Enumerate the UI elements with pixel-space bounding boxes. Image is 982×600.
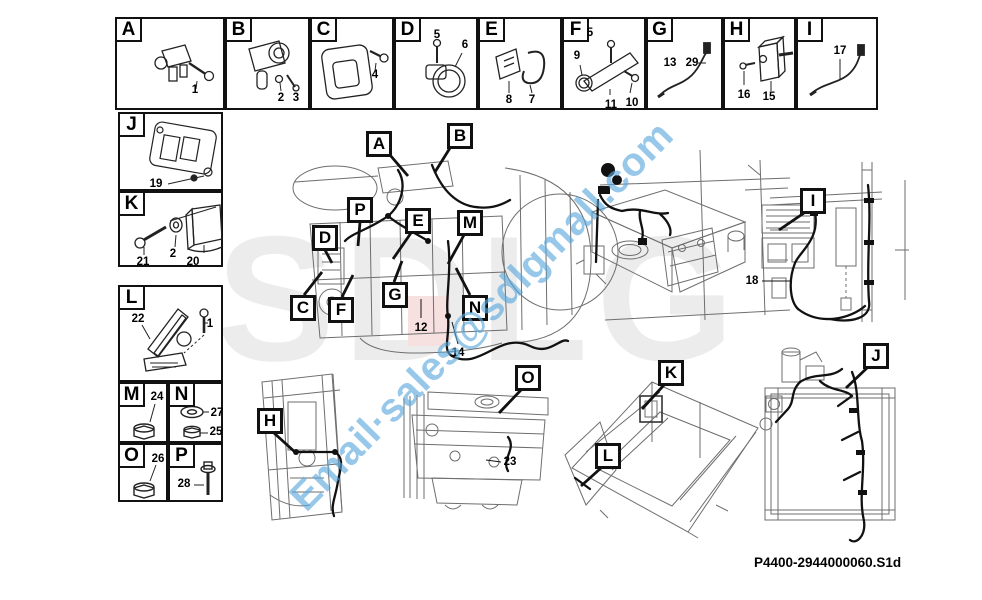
legend-letter-c: C [310, 17, 337, 42]
diagram-number-12: 12 [415, 322, 428, 334]
callout-number: 9 [574, 50, 580, 62]
legend-cell-e: E 8 7 [478, 17, 562, 110]
callout-number: 1 [192, 84, 198, 96]
legend-letter-a: A [115, 17, 142, 42]
legend-cell-o: O 26 [118, 443, 168, 502]
callout-number: 15 [763, 91, 776, 103]
diagram-callout-i: I [800, 188, 826, 214]
legend-letter-o: O [118, 443, 145, 468]
callout-number: 4 [372, 69, 378, 81]
legend-letter-l: L [118, 285, 145, 310]
diagram-callout-c: C [290, 295, 316, 321]
diagram-callout-k: K [658, 360, 684, 386]
callout-number: 11 [605, 99, 617, 111]
callout-number: 27 [211, 407, 224, 419]
callout-number: 5 [434, 29, 440, 41]
legend-cell-d: D 5 6 [394, 17, 478, 110]
diagram-callout-j: J [863, 343, 889, 369]
callout-number: 25 [210, 426, 223, 438]
legend-cell-k: K 21 2 20 [118, 191, 223, 267]
diagram-callout-n: N [462, 295, 488, 321]
legend-letter-i: I [796, 17, 823, 42]
legend-letter-j: J [118, 112, 145, 137]
diagram-number-18: 18 [746, 275, 759, 287]
diagram-callout-d: D [312, 225, 338, 251]
legend-cell-p: P 28 [168, 443, 223, 502]
callout-number: 29 [686, 57, 699, 69]
diagram-callout-a: A [366, 131, 392, 157]
callout-number: 24 [151, 391, 164, 403]
callout-number: 8 [506, 94, 512, 106]
part-number: P4400-2944000060.S1d [754, 555, 901, 570]
legend-letter-g: G [646, 17, 673, 42]
legend-cell-j: J 19 [118, 112, 223, 191]
legend-cell-m: M 24 [118, 382, 168, 443]
callout-number: 3 [293, 92, 299, 104]
diagram-callout-p: P [347, 197, 373, 223]
callout-number: 7 [529, 94, 535, 106]
callout-number: 21 [137, 256, 150, 268]
legend-cell-f: F 9 5 11 10 [562, 17, 646, 110]
legend-cell-g: G 13 29 [646, 17, 723, 110]
diagram-callout-o: O [515, 365, 541, 391]
diagram-callout-f: F [328, 297, 354, 323]
callout-number: 2 [278, 92, 284, 104]
legend-letter-n: N [168, 382, 195, 407]
legend-letter-b: B [225, 17, 252, 42]
callout-number: 10 [626, 97, 639, 109]
callout-number: 16 [738, 89, 751, 101]
legend-letter-m: M [118, 382, 145, 407]
callout-number: 17 [834, 45, 847, 57]
parts-diagram-page: SDLG [0, 0, 982, 600]
legend-letter-k: K [118, 191, 145, 216]
legend-letter-h: H [723, 17, 750, 42]
callout-number: 5 [587, 27, 593, 39]
callout-number: 6 [462, 39, 468, 51]
legend-letter-f: F [562, 17, 589, 42]
legend-cell-h: H 16 15 [723, 17, 796, 110]
legend-cell-n: N 27 25 [168, 382, 223, 443]
legend-cell-c: C 4 [310, 17, 394, 110]
diagram-callout-h: H [257, 408, 283, 434]
callout-number: 2 [170, 248, 176, 260]
callout-number: 20 [187, 256, 200, 268]
legend-letter-e: E [478, 17, 505, 42]
legend-cell-i: I 17 [796, 17, 878, 110]
legend-letter-d: D [394, 17, 421, 42]
callout-number: 19 [150, 178, 163, 190]
diagram-callout-g: G [382, 282, 408, 308]
diagram-number-14: 14 [452, 347, 465, 359]
callout-number: 13 [664, 57, 677, 69]
legend-cell-a: A 1 [115, 17, 225, 110]
diagram-number-23: 23 [504, 456, 517, 468]
diagram-callout-b: B [447, 123, 473, 149]
legend-cell-l: L 22 1 [118, 285, 223, 382]
diagram-callout-l: L [595, 443, 621, 469]
callout-number: 1 [207, 318, 213, 330]
callout-number: 28 [178, 478, 191, 490]
legend-letter-p: P [168, 443, 195, 468]
diagram-callout-m: M [457, 210, 483, 236]
legend-cell-b: B 2 3 [225, 17, 310, 110]
callout-number: 22 [132, 313, 145, 325]
callout-number: 26 [152, 453, 165, 465]
diagram-callout-e: E [405, 208, 431, 234]
